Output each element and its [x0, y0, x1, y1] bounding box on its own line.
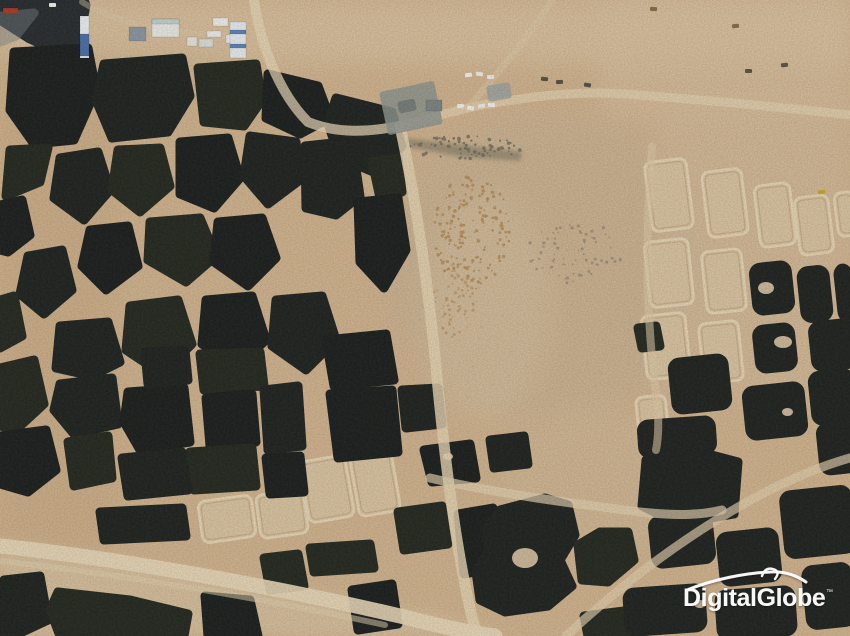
scene-root [0, 0, 850, 636]
watermark-trademark: ™ [826, 589, 833, 596]
watermark-text: DigitalGlobe [683, 584, 826, 612]
satellite-screenshot: DigitalGlobe ™ [0, 0, 850, 636]
photo-grain-light [0, 0, 850, 636]
satellite-image: DigitalGlobe ™ [0, 0, 850, 636]
